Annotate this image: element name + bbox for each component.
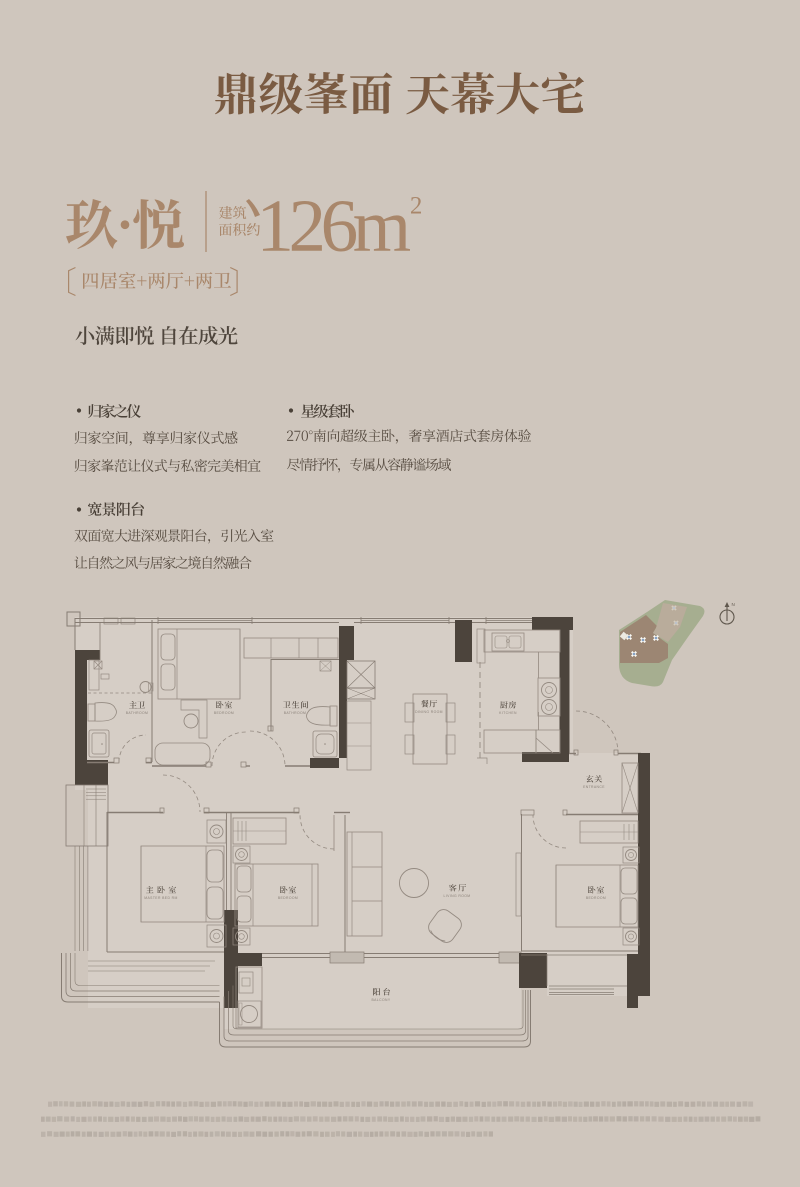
svg-text:BATHROOM: BATHROOM (284, 711, 307, 715)
svg-text:DINING ROOM: DINING ROOM (415, 710, 443, 714)
svg-text:KITCHEN: KITCHEN (499, 711, 517, 715)
svg-text:N: N (732, 602, 735, 607)
svg-text:BALCONY: BALCONY (371, 998, 390, 1002)
svg-text:BATHROOM: BATHROOM (126, 711, 149, 715)
svg-text:BEDROOM: BEDROOM (586, 896, 606, 900)
svg-text:ENTRANCE: ENTRANCE (583, 785, 605, 789)
svg-text:BEDROOM: BEDROOM (278, 896, 298, 900)
svg-text:BEDROOM: BEDROOM (214, 711, 234, 715)
svg-text:LIVING ROOM: LIVING ROOM (443, 894, 470, 898)
svg-text:MASTER BED RM: MASTER BED RM (144, 896, 177, 900)
